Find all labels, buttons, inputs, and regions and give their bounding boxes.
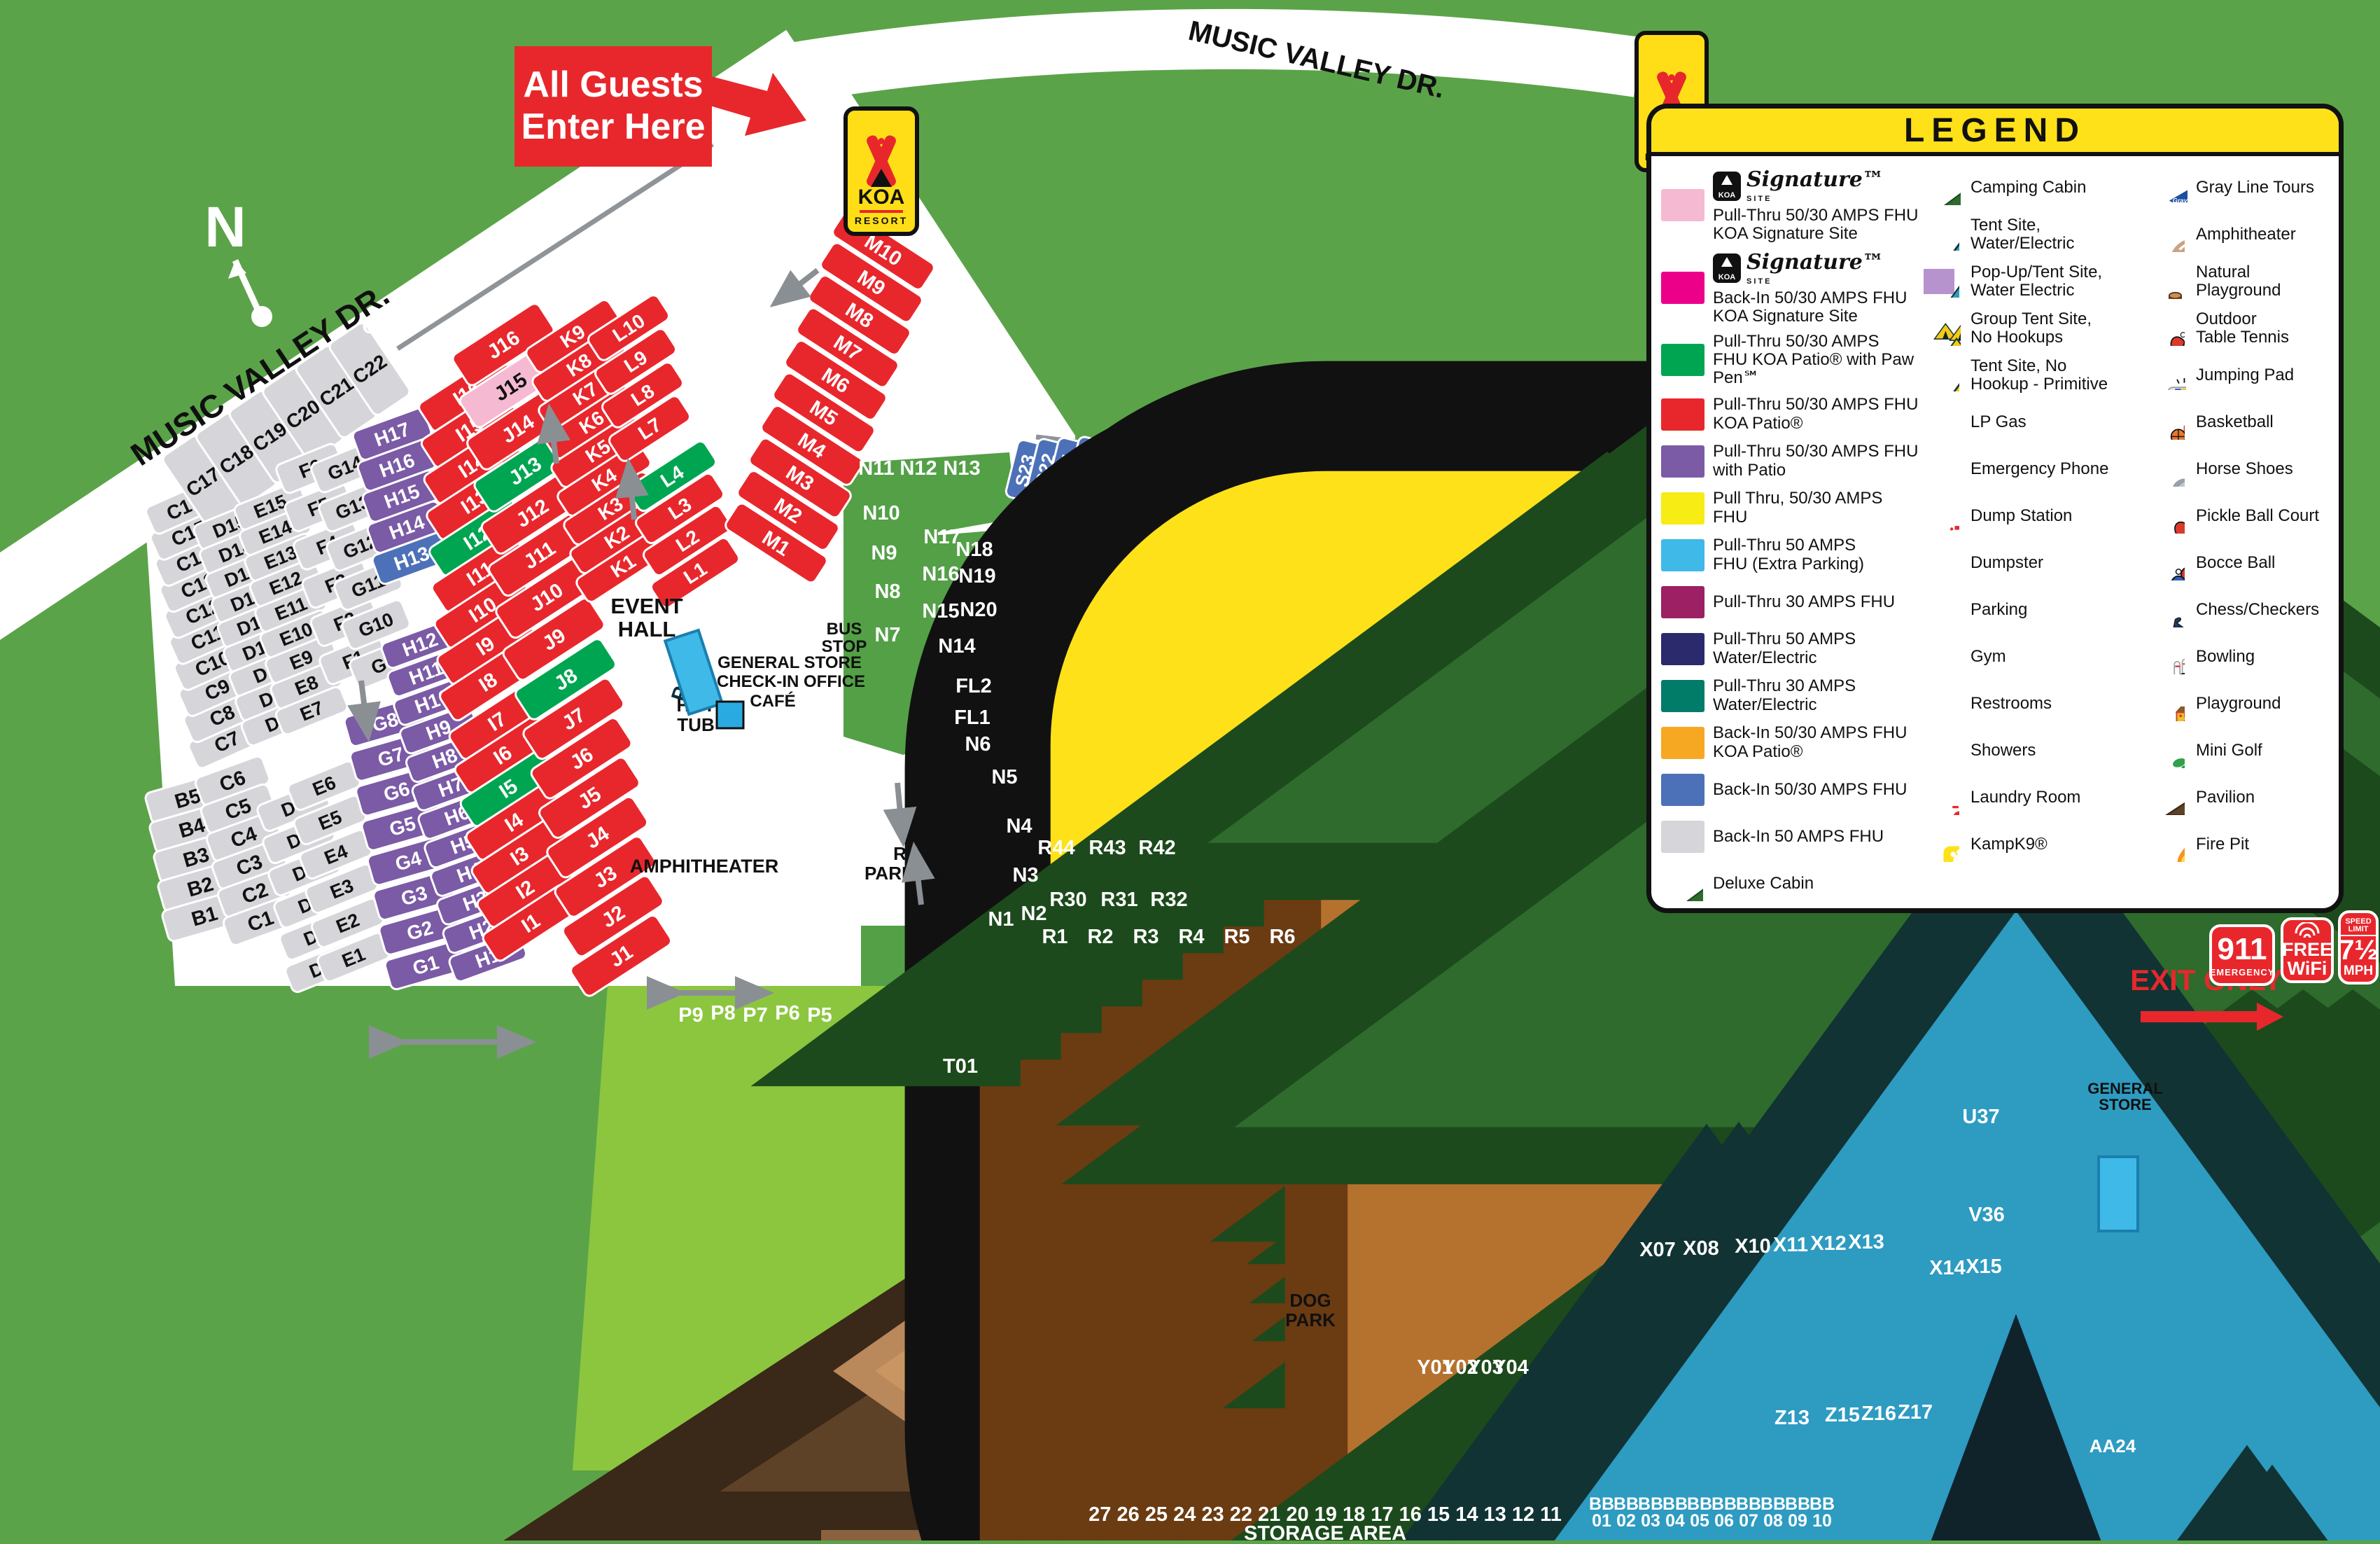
label-Z16: Z16 [1861,1403,1896,1425]
legend-item-text: Pull-Thru 30 AMPS FHU [1713,593,1895,611]
svg-text:10: 10 [1812,1511,1832,1531]
bowling-icon [2144,638,2187,676]
firepit-icon [2144,826,2187,863]
legend-swatch-blue [1661,774,1704,806]
tentblue-icon [1919,216,1962,253]
pavilion-icon [2144,779,2187,816]
label-Z17: Z17 [1898,1401,1933,1424]
legend-item-site-type-9: Pull-Thru 30 AMPS Water/Electric [1661,676,1919,716]
badge-911-number: 911 [2218,934,2267,965]
playground-icon [2144,685,2187,723]
koa-resort-sign-entrance: KOA RESORT [843,106,919,236]
legend-item-site-type-2: Pull-Thru 50/30 AMPSFHU KOA Patio® with … [1661,333,1919,388]
legend-item-text: Showers [1970,742,2036,760]
label-Z13: Z13 [1774,1407,1809,1429]
legend-swatch-lightblue [1661,539,1704,571]
legend-item-text: KOASignature™SITEPull-Thru 50/30 AMPS FH… [1713,167,1918,244]
text-check-in-office: CHECK-IN OFFICE [717,672,865,691]
legend-item-activity-11: Playground [2144,683,2334,724]
horseshoe-icon [2144,450,2187,488]
legend-item-site-type-0: KOASignature™SITEPull-Thru 50/30 AMPS FH… [1661,167,1919,244]
legend-body: KOASignature™SITEPull-Thru 50/30 AMPS FH… [1651,156,2339,913]
phone911-icon [1919,450,1962,488]
legend-item-text: Tent Site, Water/Electric [1970,216,2144,253]
legend-swatch-navy [1661,633,1704,665]
legend-swatch-red [1661,398,1704,431]
text-general: GENERAL [2087,1080,2163,1097]
legend-item-facility-6: Emergency Phone [1919,449,2144,489]
wifi-icon [2292,922,2323,940]
legend-item-text: Tent Site, NoHookup - Primitive [1970,357,2108,394]
label-N14: N14 [938,635,975,658]
svg-text:07: 07 [1739,1511,1758,1531]
legend-item-activity-14: Fire Pit [2144,824,2334,865]
legend-item-text: OutdoorTable Tennis [2196,310,2289,347]
label-N12: N12 [899,457,937,480]
enter-here-callout: All Guests Enter Here [514,46,712,167]
legend-item-activity-13: Pavilion [2144,777,2334,818]
legend-item-facility-8: Dumpster [1919,543,2144,583]
label-N13: N13 [943,457,980,480]
label-R42: R42 [1138,837,1175,859]
legend-item-text: Mini Golf [2196,742,2262,760]
jumppad-icon [2144,356,2187,394]
label-P3: P3 [809,912,834,934]
legend-item-text: KOASignature™SITEBack-In 50/30 AMPS FHUK… [1713,250,1907,326]
legend-title: LEGEND [1904,111,2086,150]
label-R1: R1 [1042,926,1067,948]
legend-item-facility-9: Parking [1919,590,2144,630]
label-P7: P7 [743,1004,767,1027]
legend-item-facility-4: Tent Site, NoHookup - Primitive [1919,355,2144,396]
legend-item-text: Pavilion [2196,788,2255,807]
gym-icon [1919,638,1962,676]
legend-item-text: Amphitheater [2196,225,2296,244]
legend-item-text: Dumpster [1970,554,2043,572]
badge-wifi-line2: WiFi [2288,959,2327,978]
legend-item-text: Pull-Thru 30 AMPS Water/Electric [1713,677,1919,714]
cabin-icon [1919,169,1962,207]
text-tub: TUB [677,714,714,735]
koa-signature-box-icon: KOA [1713,172,1741,201]
legend-item-text: LP Gas [1970,413,2026,431]
label-N1: N1 [988,908,1014,931]
koa-logo-icon [860,134,902,186]
label-R31: R31 [1100,889,1137,911]
shower-icon [1919,732,1962,770]
legend-item-activity-3: OutdoorTable Tennis [2144,308,2334,349]
svg-text:05: 05 [1690,1511,1709,1531]
label-X11: X11 [1773,1234,1808,1256]
label-N15: N15 [922,600,959,623]
text-store: STORE [2099,1096,2151,1113]
text-general-store: GENERAL STORE [717,653,862,672]
legend-item-text: Pull-Thru 50/30 AMPS FHU with Patio [1713,443,1919,480]
legend-item-facility-11: Restrooms [1919,683,2144,724]
label-N8: N8 [874,580,900,603]
label-C25: C25 [443,263,480,285]
label-N11: N11 [858,457,895,480]
label-X10: X10 [1735,1235,1771,1258]
tentpop-icon [1919,263,1962,300]
cabin-icon [1661,865,1704,903]
legend-item-text: Bocce Ball [2196,554,2275,572]
legend-swatch-pink [1661,189,1704,221]
lp-icon [1919,403,1962,441]
speed-limit-value: 7½ [2339,936,2378,964]
legend-item-text: Pop-Up/Tent Site,Water Electric [1970,263,2102,300]
text-amphitheater: AMPHITHEATER [630,856,779,877]
legend-item-activity-6: Horse Shoes [2144,449,2334,489]
campground-map: 911 PHONE P KAMP K9 Gra [0,0,2380,1540]
legend-swatch-gray [1661,821,1704,853]
dumpster-icon [1919,544,1962,582]
label-P9: P9 [678,1004,703,1027]
label-R30: R30 [1049,889,1086,911]
label-X08: X08 [1683,1237,1719,1260]
legend-item-site-type-7: Pull-Thru 30 AMPS FHU [1661,582,1919,623]
label-X14: X14 [1929,1257,1966,1279]
koa-sign-name: KOA [858,187,905,208]
text-hall: HALL [618,617,676,641]
pickle-icon [2144,497,2187,535]
legend-item-site-type-12: Back-In 50 AMPS FHU [1661,816,1919,857]
legend-item-text: NaturalPlayground [2196,263,2281,300]
legend-item-text: Playground [2196,695,2281,713]
legend-item-facility-0: Camping Cabin [1919,167,2144,208]
wc-icon [1919,685,1962,723]
legend-item-activity-4: Jumping Pad [2144,355,2334,396]
signature-script: Signature™ [1746,167,1884,192]
grayline-icon [2144,169,2187,207]
legend-item-facility-1: Tent Site, Water/Electric [1919,214,2144,255]
speed-limit-label: SPEED LIMIT [2341,918,2376,936]
pingpong-icon [2144,310,2187,347]
label-T01: T01 [943,1055,978,1078]
legend-item-text: Gym [1970,648,2006,666]
svg-text:02: 02 [1616,1511,1636,1531]
label-P5: P5 [807,1004,832,1027]
legend-item-text: Group Tent Site,No Hookups [1970,310,2092,347]
enter-here-line2: Enter Here [521,106,706,148]
label-C24: C24 [402,289,440,312]
label-P4: P4 [760,913,785,936]
legend-item-site-type-3: Pull-Thru 50/30 AMPS FHU KOA Patio® [1661,394,1919,435]
legend-item-facility-5: LP Gas [1919,402,2144,443]
koa-sign-sub: RESORT [855,215,908,226]
legend-swatch-magenta [1661,272,1704,304]
legend-item-text: Back-In 50/30 AMPS FHU [1713,781,1907,799]
label-R6: R6 [1269,926,1295,948]
legend-item-site-type-5: Pull Thru, 50/30 AMPS FHU [1661,488,1919,529]
legend-item-facility-2: Pop-Up/Tent Site,Water Electric [1919,261,2144,302]
label-N9: N9 [871,542,897,564]
signature-script: Signature™ [1746,250,1884,274]
text-storage-area: STORAGE AREA [1244,1522,1406,1540]
legend-item-text: Basketball [2196,413,2274,431]
label-X07: X07 [1639,1239,1676,1261]
amphi-icon [2144,216,2187,253]
label-R5: R5 [1224,926,1249,948]
legend-item-facility-13: Laundry Room [1919,777,2144,818]
legend-item-activity-9: Chess/Checkers [2144,590,2334,630]
label-N2: N2 [1021,903,1046,925]
svg-text:01: 01 [1592,1511,1611,1531]
legend-item-site-type-4: Pull-Thru 50/30 AMPS FHU with Patio [1661,441,1919,482]
label-P8: P8 [710,1002,735,1024]
text-event: EVENT [610,594,682,618]
svg-text:09: 09 [1788,1511,1807,1531]
label-R44: R44 [1037,837,1074,859]
label-C26: C26 [484,236,521,258]
signature-site-label: SITE [1746,277,1772,286]
legend-item-text: Pull-Thru 50/30 AMPS FHU KOA Patio® [1713,396,1919,433]
legend-item-facility-12: Showers [1919,730,2144,771]
label-R2: R2 [1087,926,1113,948]
legend-item-facility-7: Dump Station [1919,496,2144,536]
label-U37: U37 [1962,1106,1999,1128]
legend-item-text: Camping Cabin [1970,179,2086,197]
chess-icon [2144,591,2187,629]
tentyellow-icon [1919,356,1962,394]
legend-item-text: Bowling [2196,648,2255,666]
label-N20: N20 [960,599,997,621]
svg-text:06: 06 [1714,1511,1734,1531]
label-AA24: AA24 [2089,1435,2136,1456]
label-R3: R3 [1133,926,1158,948]
legend-item-site-type-8: Pull-Thru 50 AMPS Water/Electric [1661,629,1919,669]
pool-east [2099,1157,2138,1231]
basketball-icon [2144,403,2187,441]
enter-here-line1: All Guests [523,64,703,106]
legend-column-sites: KOASignature™SITEPull-Thru 50/30 AMPS FH… [1661,167,1919,913]
badge-911-label: EMERGENCY [2210,968,2275,977]
legend-item-text: Restrooms [1970,695,2052,713]
legend-item-activity-10: Bowling [2144,637,2334,677]
legend-item-text: KampK9® [1970,835,2047,854]
label-FL2: FL2 [955,675,992,697]
free-wifi-badge: FREE WiFi [2281,917,2334,983]
label-N19: N19 [958,565,995,587]
legend-item-text: Pull-Thru 50 AMPSFHU (Extra Parking) [1713,536,1864,573]
legend-item-text: Pull Thru, 50/30 AMPS FHU [1713,489,1919,527]
label-C28: C28 [565,183,602,205]
legend-item-facility-3: Group Tent Site,No Hookups [1919,308,2144,349]
label-N4: N4 [1006,815,1032,837]
label-X13: X13 [1848,1231,1884,1253]
tentgroup-icon [1919,310,1962,347]
legend-swatch-yellow [1661,492,1704,524]
label-L6: L6 [694,411,717,433]
text-bus: BUS [827,620,862,639]
text-parking: PARKING [864,863,947,884]
legend-header: LEGEND [1651,109,2339,156]
label-N6: N6 [965,733,990,756]
legend-item-activity-12: Mini Golf [2144,730,2334,771]
legend-column-facilities: Camping CabinTent Site, Water/ElectricPo… [1919,167,2144,913]
label-X15: X15 [1966,1256,2002,1278]
signature-site-label: SITE [1746,195,1772,203]
dcs-icon [1661,912,1704,913]
legend-column-activities: Gray Line ToursAmphitheaterNaturalPlaygr… [2144,167,2334,913]
text-park: PARK [1285,1309,1336,1330]
legend-item-site-type-11: Back-In 50/30 AMPS FHU [1661,770,1919,810]
koa-signature-box-icon: KOA [1713,253,1741,283]
legend-item-site-type-14: DC, 4P, 1 Room Studio [1661,910,1919,913]
legend-item-activity-7: Pickle Ball Court [2144,496,2334,536]
text-stop: STOP [822,637,867,656]
label-V36: V36 [1968,1204,2005,1226]
legend-item-text: Pull-Thru 50/30 AMPSFHU KOA Patio® with … [1713,333,1919,388]
legend-item-text: Dump Station [1970,507,2072,525]
minigolf-icon [2144,732,2187,770]
label-C27: C27 [524,209,561,232]
legend-swatch-orange [1661,727,1704,759]
legend-item-activity-2: NaturalPlayground [2144,261,2334,302]
speed-limit-unit: MPH [2344,964,2373,978]
stumps-icon [2144,263,2187,300]
label-Y04: Y04 [1492,1356,1529,1379]
label-R43: R43 [1088,837,1126,859]
laundry-icon [1919,779,1962,816]
label-N18: N18 [955,538,993,561]
legend-item-site-type-10: Back-In 50/30 AMPS FHU KOA Patio® [1661,723,1919,763]
legend-item-text: Jumping Pad [2196,366,2294,384]
legend-item-text: Deluxe Cabin [1713,875,1814,893]
legend-item-text: Gray Line Tours [2196,179,2314,197]
legend-item-text: Laundry Room [1970,788,2080,807]
label-L5: L5 [688,352,712,375]
emergency-911-badge: 911 EMERGENCY [2209,924,2275,986]
legend-item-text: Fire Pit [2196,835,2249,854]
legend-item-text: Pickle Ball Court [2196,507,2319,525]
label-P2: P2 [799,845,824,868]
speed-limit-badge: SPEED LIMIT 7½ MPH [2338,910,2379,985]
text-dog: DOG [1289,1290,1331,1311]
legend-panel: LEGEND KOASignature™SITEPull-Thru 50/30 … [1646,104,2344,913]
label-X12: X12 [1810,1232,1847,1255]
label-FL1: FL1 [954,707,990,729]
legend-item-site-type-1: KOASignature™SITEBack-In 50/30 AMPS FHUK… [1661,250,1919,326]
legend-swatch-purple [1661,445,1704,478]
label-R32: R32 [1150,889,1187,911]
legend-item-site-type-13: Deluxe Cabin [1661,863,1919,904]
parking-icon [1919,591,1962,629]
koa-signature-logo: KOASignature™SITE [1713,167,1918,204]
legend-item-facility-14: KampK9® [1919,824,2144,865]
kampk9-icon [1919,826,1962,863]
legend-item-facility-10: Gym [1919,637,2144,677]
label-P6: P6 [775,1002,799,1024]
legend-item-text: Emergency Phone [1970,460,2108,478]
label-R4: R4 [1178,926,1204,948]
svg-text:04: 04 [1665,1511,1685,1531]
legend-item-activity-8: Bocce Ball [2144,543,2334,583]
label-N10: N10 [862,502,899,524]
koa-signature-logo: KOASignature™SITE [1713,250,1907,287]
legend-item-text: Parking [1970,601,2027,619]
legend-swatch-plum [1661,586,1704,618]
legend-item-activity-0: Gray Line Tours [2144,167,2334,208]
legend-swatch-teal [1661,680,1704,712]
text-n: N [204,195,246,259]
legend-swatch-green [1661,344,1704,376]
legend-item-text: Back-In 50 AMPS FHU [1713,828,1884,846]
legend-item-text: Back-In 50/30 AMPS FHU KOA Patio® [1713,724,1919,761]
label-N16: N16 [922,563,959,585]
legend-item-activity-1: Amphitheater [2144,214,2334,255]
dump-icon [1919,497,1962,535]
text-caf-: CAFÉ [750,691,795,711]
label-Z15: Z15 [1825,1404,1860,1426]
label-N5: N5 [991,766,1017,788]
svg-text:03: 03 [1641,1511,1660,1531]
badge-wifi-line1: FREE [2282,940,2332,959]
svg-text:08: 08 [1763,1511,1783,1531]
legend-item-text: Pull-Thru 50 AMPS Water/Electric [1713,630,1919,667]
legend-item-text: Horse Shoes [2196,460,2293,478]
label-N7: N7 [874,624,900,646]
hot-tub [717,702,743,728]
label-N3: N3 [1012,864,1038,886]
legend-item-text: Chess/Checkers [2196,601,2319,619]
legend-item-site-type-6: Pull-Thru 50 AMPSFHU (Extra Parking) [1661,535,1919,576]
bocce-icon [2144,544,2187,582]
legend-item-activity-5: Basketball [2144,402,2334,443]
